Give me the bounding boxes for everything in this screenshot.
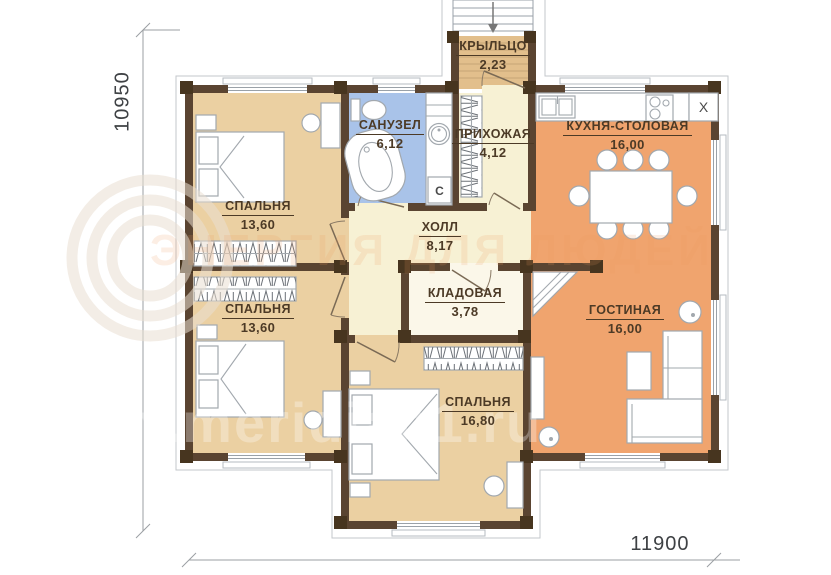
stool xyxy=(302,114,320,132)
stool xyxy=(304,411,322,429)
room-label-porch: КРЫЛЬЦО 2,23 xyxy=(423,40,563,72)
chair xyxy=(569,186,589,206)
room-label-bedroom-3: СПАЛЬНЯ 16,80 xyxy=(408,396,548,428)
double-bed xyxy=(196,132,284,202)
dimension-height: 10950 xyxy=(112,42,135,162)
room-name: КУХНЯ-СТОЛОВАЯ xyxy=(563,120,691,136)
room-name: СПАЛЬНЯ xyxy=(222,303,294,319)
room-label-entry: ПРИХОЖАЯ 4,12 xyxy=(432,128,554,160)
fridge-label: X xyxy=(699,99,709,115)
room-name: САНУЗЕЛ xyxy=(356,119,424,135)
pillow xyxy=(199,346,218,374)
floor-lamp xyxy=(539,427,559,447)
room-label-kitchen: КУХНЯ-СТОЛОВАЯ 16,00 xyxy=(550,120,705,152)
dimension-width: 11900 xyxy=(600,533,720,556)
nightstand xyxy=(350,371,370,385)
room-name: ХОЛЛ xyxy=(419,221,462,237)
window-living-bottom xyxy=(580,453,665,468)
window-bedroom1-top xyxy=(223,78,312,93)
window-bathroom-top xyxy=(373,78,420,93)
wardrobe-hangers xyxy=(424,347,523,370)
kitchen-sink xyxy=(539,96,575,118)
desk xyxy=(507,462,523,508)
nightstand xyxy=(196,115,216,130)
window-living-right xyxy=(711,295,726,400)
room-label-bedroom-1: СПАЛЬНЯ 13,60 xyxy=(188,200,328,232)
pillow xyxy=(199,380,218,408)
floor-corridor xyxy=(349,263,401,343)
nightstand xyxy=(350,483,370,497)
room-area: 3,78 xyxy=(395,305,535,319)
dresser xyxy=(323,391,341,437)
room-label-hall: ХОЛЛ 8,17 xyxy=(370,221,510,253)
chair xyxy=(677,186,697,206)
chair xyxy=(597,150,617,170)
window-kitchen-top xyxy=(560,78,650,93)
room-area: 4,12 xyxy=(432,146,554,160)
room-area: 16,00 xyxy=(555,322,695,336)
room-area: 8,17 xyxy=(370,239,510,253)
desk-chair xyxy=(484,476,504,496)
coffee-table xyxy=(627,352,651,390)
pillow xyxy=(199,169,218,196)
room-label-storage: КЛАДОВАЯ 3,78 xyxy=(395,287,535,319)
floor-passage xyxy=(531,211,536,263)
window-bedroom3-bottom xyxy=(392,521,485,536)
room-name: СПАЛЬНЯ xyxy=(222,200,294,216)
washing-machine: С xyxy=(428,177,451,203)
chair xyxy=(649,150,669,170)
room-area: 13,60 xyxy=(188,218,328,232)
room-name: КЛАДОВАЯ xyxy=(425,287,505,303)
room-label-living: ГОСТИНАЯ 16,00 xyxy=(555,304,695,336)
floor-kitchen-living-passage xyxy=(597,263,711,271)
room-area: 16,80 xyxy=(408,414,548,428)
room-name: ПРИХОЖАЯ xyxy=(452,128,534,144)
washer-label: С xyxy=(435,184,444,198)
pillow xyxy=(352,444,372,474)
room-name: СПАЛЬНЯ xyxy=(442,396,514,412)
floor-plan-page: С X xyxy=(0,0,831,575)
double-bed xyxy=(196,341,284,417)
room-area: 16,00 xyxy=(550,138,705,152)
pillow xyxy=(352,395,372,425)
room-area: 13,60 xyxy=(188,321,328,335)
room-label-bedroom-2: СПАЛЬНЯ 13,60 xyxy=(188,303,328,335)
stove xyxy=(646,95,673,121)
window-bedroom2-bottom xyxy=(223,453,310,468)
room-name: КРЫЛЬЦО xyxy=(456,40,530,56)
pillow xyxy=(199,137,218,164)
dining-table xyxy=(590,171,672,223)
room-name: ГОСТИНАЯ xyxy=(586,304,664,320)
window-kitchen-right xyxy=(711,135,726,230)
room-area: 2,23 xyxy=(423,58,563,72)
fridge: X xyxy=(689,93,718,121)
chair xyxy=(623,150,643,170)
